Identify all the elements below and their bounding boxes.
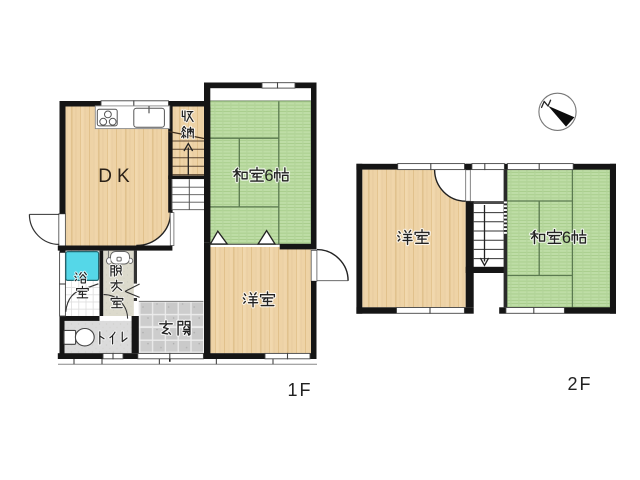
svg-text:1F: 1F	[287, 380, 312, 400]
svg-text:6: 6	[562, 229, 571, 247]
svg-text:6: 6	[264, 167, 273, 185]
svg-text:2F: 2F	[567, 374, 592, 394]
svg-text:DK: DK	[98, 166, 134, 187]
